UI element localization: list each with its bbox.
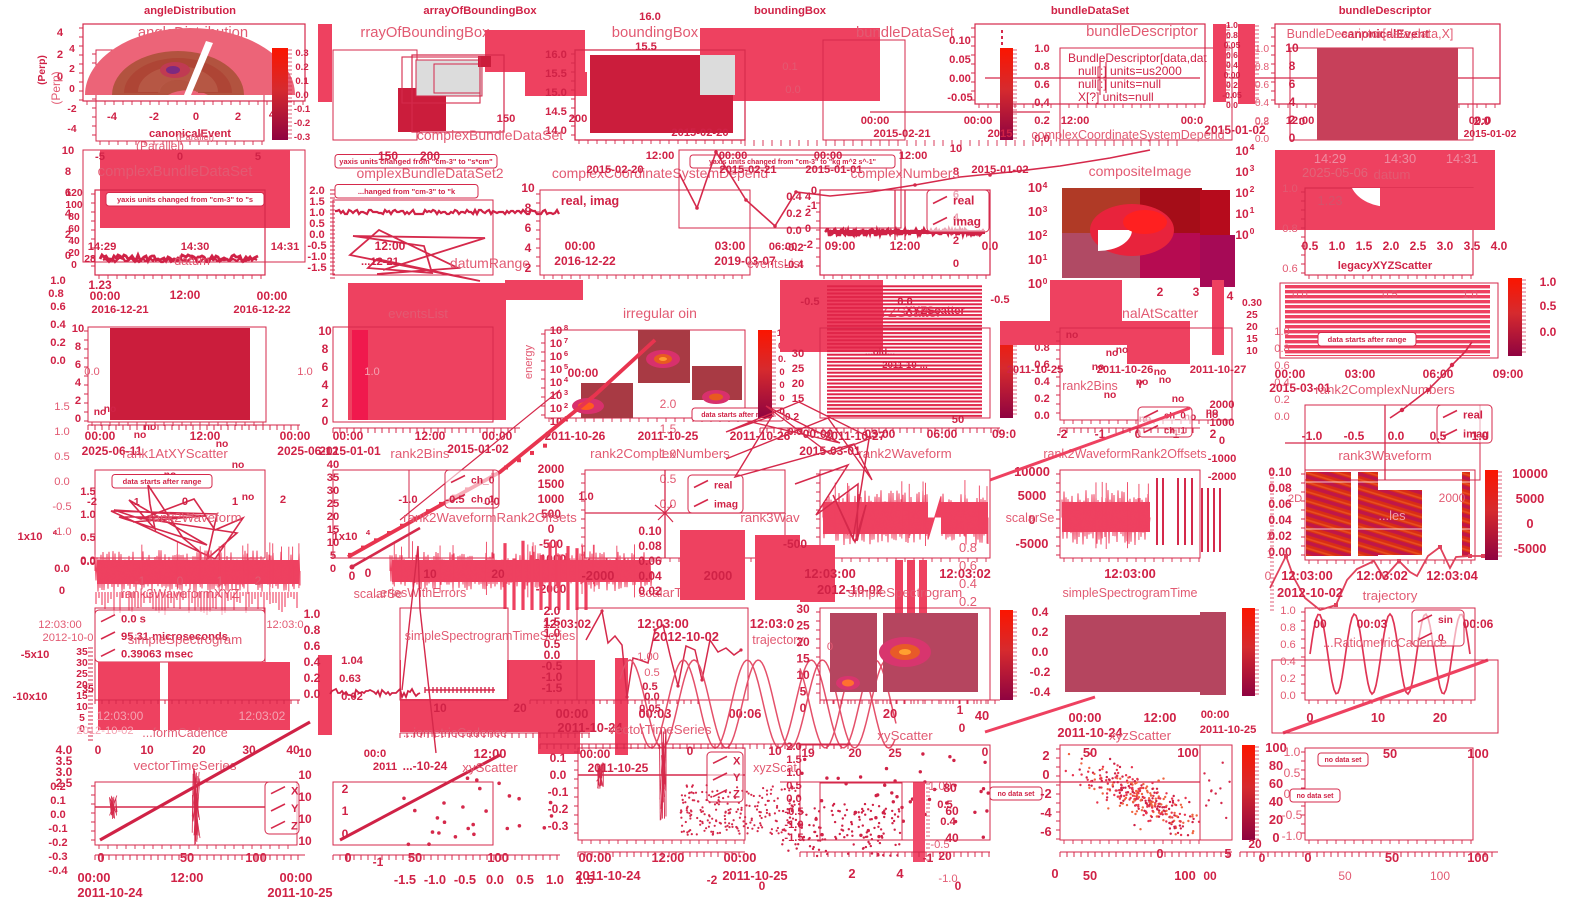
svg-text:0: 0 (177, 151, 183, 163)
svg-text:2011-10-25: 2011-10-25 (638, 429, 699, 443)
svg-text:-0.1: -0.1 (48, 823, 67, 835)
svg-text:0.0: 0.0 (84, 366, 100, 378)
svg-text:20: 20 (491, 567, 505, 581)
svg-text:60: 60 (68, 224, 80, 235)
svg-text:-0.5: -0.5 (1282, 808, 1303, 822)
svg-text:0: 0 (687, 744, 694, 758)
svg-text:1.0: 1.0 (1255, 44, 1270, 55)
svg-text:2: 2 (1042, 748, 1049, 763)
svg-text:1: 1 (1250, 205, 1255, 215)
svg-text:2: 2 (1210, 427, 1217, 441)
svg-text:2015-01-02: 2015-01-02 (1464, 129, 1517, 140)
svg-text:6: 6 (564, 349, 568, 358)
svg-text:-1.0: -1.0 (398, 494, 417, 506)
svg-text:legacyXYZScatter: legacyXYZScatter (1338, 260, 1433, 272)
svg-text:00: 00 (1203, 869, 1217, 883)
svg-text:12:03:02: 12:03:02 (239, 709, 286, 723)
svg-text:0: 0 (330, 563, 336, 575)
svg-text:12:03:02: 12:03:02 (939, 566, 991, 581)
svg-text:4: 4 (1043, 180, 1048, 190)
svg-text:00:00: 00:00 (1275, 367, 1306, 381)
svg-text:14:31: 14:31 (1446, 151, 1478, 166)
svg-text:09:00: 09:00 (825, 239, 856, 253)
svg-text:scalarSe: scalarSe (1006, 511, 1055, 525)
svg-text:no: no (1172, 394, 1185, 405)
svg-text:150: 150 (378, 149, 398, 163)
svg-text:2: 2 (57, 49, 63, 61)
svg-text:2: 2 (235, 111, 241, 123)
svg-text:0: 0 (95, 743, 102, 757)
svg-text:3: 3 (1193, 285, 1200, 299)
svg-text:0.6: 0.6 (1034, 79, 1050, 91)
svg-text:0: 0 (1250, 226, 1255, 236)
svg-text:10: 10 (1246, 346, 1258, 357)
svg-text:no: no (1116, 345, 1129, 356)
svg-text:-0.05: -0.05 (947, 92, 973, 104)
svg-text:X[?] units=null: X[?] units=null (1078, 90, 1154, 104)
svg-text:2.0: 2.0 (1474, 114, 1491, 128)
svg-text:0: 0 (182, 496, 188, 508)
svg-text:12:03:00: 12:03:00 (1281, 568, 1333, 583)
svg-text:0: 0 (322, 414, 329, 428)
svg-text:0.8: 0.8 (1255, 62, 1270, 73)
svg-text:00:06: 00:06 (1463, 617, 1494, 631)
svg-text:-5000: -5000 (1514, 541, 1547, 556)
svg-text:2011-10-26: 2011-10-26 (1097, 364, 1154, 376)
svg-text:10: 10 (1235, 228, 1249, 242)
svg-text:12:00: 12:00 (170, 288, 201, 302)
svg-text:8: 8 (525, 201, 532, 215)
svg-text:0.0: 0.0 (50, 809, 66, 821)
svg-text:2: 2 (564, 401, 568, 410)
svg-text:10: 10 (1028, 180, 1042, 195)
svg-text:0.6: 0.6 (304, 639, 321, 653)
svg-text:complexNumbers: complexNumbers (851, 165, 960, 181)
svg-text:00:00: 00:00 (280, 429, 311, 443)
svg-text:BundleDescriptor[data,data,X]: BundleDescriptor[data,data,X] (1287, 27, 1454, 41)
svg-text:1: 1 (232, 496, 238, 508)
svg-text:arrayOfBoundingBox: arrayOfBoundingBox (423, 5, 537, 17)
svg-text:2015-01-02: 2015-01-02 (447, 442, 509, 456)
svg-text:null[:] units=null: null[:] units=null (1078, 77, 1161, 91)
svg-text:no data set: no data set (1325, 757, 1363, 764)
svg-text:0.1: 0.1 (295, 76, 309, 87)
svg-text:5000: 5000 (1516, 491, 1545, 506)
svg-text:-0.05: -0.05 (1222, 90, 1242, 100)
svg-text:4: 4 (896, 866, 904, 881)
svg-text:200: 200 (569, 113, 588, 125)
svg-text:16.0: 16.0 (545, 49, 567, 61)
svg-text:0: 0 (811, 185, 817, 197)
svg-text:1.0: 1.0 (1284, 745, 1301, 759)
svg-text:0: 0 (1043, 276, 1048, 286)
svg-text:0.0: 0.0 (304, 687, 321, 701)
svg-text:0.8: 0.8 (959, 540, 977, 555)
svg-text:10: 10 (521, 181, 535, 195)
svg-text:4.0: 4.0 (1491, 239, 1508, 253)
svg-text:2012-10-0: 2012-10-0 (42, 632, 93, 644)
svg-text:0: 0 (779, 367, 784, 378)
svg-text:14.5: 14.5 (545, 106, 567, 118)
svg-text:6: 6 (75, 359, 81, 371)
svg-text:0.02: 0.02 (638, 584, 662, 598)
svg-text:0.06: 0.06 (1268, 497, 1292, 511)
svg-text:00:00: 00:00 (568, 366, 599, 380)
svg-text:-0.5: -0.5 (445, 494, 464, 506)
svg-text:4: 4 (75, 377, 82, 389)
svg-text:1.0: 1.0 (1274, 326, 1290, 338)
svg-text:3.5: 3.5 (1464, 239, 1481, 253)
svg-text:4: 4 (525, 241, 532, 255)
svg-text:50: 50 (1083, 745, 1097, 760)
svg-text:0.0: 0.0 (1034, 410, 1050, 422)
svg-text:1x10: 1x10 (333, 531, 358, 543)
svg-text:12:00: 12:00 (899, 150, 928, 162)
svg-text:00:00: 00:00 (1201, 709, 1230, 721)
svg-text:0.6: 0.6 (1255, 80, 1270, 91)
svg-text:2015-02-21: 2015-02-21 (873, 128, 930, 140)
svg-text:0.10: 0.10 (949, 35, 971, 47)
svg-text:...hanged from "cm-3" to "k: ...hanged from "cm-3" to "k (358, 187, 456, 196)
svg-text:10: 10 (298, 790, 312, 804)
svg-text:12:00: 12:00 (1061, 115, 1090, 127)
svg-text:0.0: 0.0 (786, 793, 802, 805)
svg-text:2: 2 (848, 866, 855, 881)
svg-text:10: 10 (1028, 204, 1042, 219)
svg-text:0: 0 (177, 574, 184, 588)
svg-text:0.1: 0.1 (50, 795, 66, 807)
svg-text:rank2Waveform: rank2Waveform (858, 446, 951, 461)
svg-text:1.0: 1.0 (1540, 275, 1557, 289)
svg-text:-0.5: -0.5 (1344, 429, 1365, 443)
svg-text:no: no (232, 460, 245, 471)
svg-text:-2000: -2000 (582, 568, 615, 583)
svg-text:simpleSpectrogram: simpleSpectrogram (848, 585, 963, 600)
svg-text:(Perp): (Perp) (49, 71, 63, 104)
svg-text:-1: -1 (923, 851, 934, 865)
svg-text:2: 2 (69, 64, 75, 75)
svg-text:rank2WaveformRank2Offsets: rank2WaveformRank2Offsets (403, 510, 577, 525)
svg-text:vectorTimeSeries: vectorTimeSeries (609, 722, 712, 737)
svg-text:0.4: 0.4 (940, 816, 956, 828)
svg-text:4: 4 (57, 27, 64, 39)
svg-text:15.0: 15.0 (545, 87, 567, 99)
svg-text:2011-10-27: 2011-10-27 (1190, 364, 1247, 376)
svg-text:imag: imag (714, 500, 738, 511)
svg-text:00: 00 (1313, 617, 1327, 631)
svg-text:-0.2: -0.2 (548, 802, 569, 816)
svg-text:0: 0 (1042, 767, 1049, 782)
svg-text:2025-05-06: 2025-05-06 (1302, 165, 1368, 180)
svg-text:0.3: 0.3 (295, 48, 308, 59)
svg-text:09:00: 09:00 (1493, 367, 1524, 381)
svg-text:2016-12-22: 2016-12-22 (233, 304, 290, 316)
svg-text:simpleSpectrogram: simpleSpectrogram (128, 632, 243, 647)
svg-text:rank2Waveform: rank2Waveform (148, 510, 241, 525)
svg-text:0.: 0. (778, 354, 786, 365)
svg-text:0.8: 0.8 (1255, 117, 1270, 128)
svg-text:...12-21: ...12-21 (361, 256, 399, 268)
svg-text:10: 10 (1285, 41, 1299, 55)
svg-text:0.4: 0.4 (1226, 60, 1238, 70)
svg-text:rrayOfBoundingBox: rrayOfBoundingBox (360, 25, 490, 41)
svg-text:10: 10 (433, 701, 447, 715)
svg-text:0: 0 (349, 569, 356, 583)
svg-text:1500: 1500 (538, 477, 565, 491)
svg-text:0: 0 (1259, 851, 1266, 865)
svg-text:-1.5: -1.5 (394, 872, 416, 887)
svg-text:0.2: 0.2 (50, 337, 66, 349)
svg-text:0.2: 0.2 (1032, 625, 1049, 639)
svg-text:20: 20 (1433, 710, 1447, 725)
svg-text:1.0: 1.0 (50, 275, 66, 287)
svg-text:-5000: -5000 (1016, 536, 1049, 551)
svg-text:12:00: 12:00 (1144, 710, 1177, 725)
svg-text:00:00: 00:00 (333, 429, 364, 443)
svg-text:0: 0 (1526, 516, 1533, 531)
svg-text:0: 0 (1219, 435, 1225, 447)
svg-text:2: 2 (1157, 285, 1164, 299)
svg-text:4: 4 (322, 378, 329, 392)
svg-text:rank1AtXYScatter: rank1AtXYScatter (122, 446, 228, 461)
svg-text:0: 0 (805, 223, 811, 235)
svg-text:2.0: 2.0 (660, 397, 677, 411)
svg-text:-0.5: -0.5 (800, 296, 819, 308)
svg-text:2011-10-25: 2011-10-25 (1007, 364, 1064, 376)
svg-text:-500: -500 (783, 537, 807, 551)
svg-text:-4: -4 (1040, 805, 1052, 820)
svg-text:00:00: 00:00 (565, 239, 596, 253)
svg-text:100: 100 (1174, 868, 1196, 883)
svg-text:rank2Bins: rank2Bins (1062, 379, 1118, 393)
svg-text:0.0: 0.0 (1226, 100, 1238, 110)
svg-text:(Perp): (Perp) (37, 55, 48, 85)
svg-text:rank3Waveform: rank3Waveform (1338, 448, 1431, 463)
svg-text:35: 35 (82, 684, 94, 695)
svg-text:2: 2 (1267, 529, 1274, 543)
svg-text:-0.5: -0.5 (930, 839, 949, 851)
svg-text:-2: -2 (803, 239, 813, 251)
svg-text:2015-02-20: 2015-02-20 (586, 164, 643, 176)
svg-text:10: 10 (1235, 186, 1249, 200)
svg-text:06:00: 06:00 (769, 241, 798, 253)
svg-text:ch_1: ch_1 (1164, 426, 1186, 437)
svg-text:irregular oin: irregular oin (623, 305, 697, 321)
svg-text:BundleDescriptor[data,dat: BundleDescriptor[data,dat (1068, 51, 1207, 65)
svg-text:10: 10 (550, 351, 562, 363)
svg-text:8: 8 (75, 341, 81, 353)
svg-text:0.04: 0.04 (1268, 513, 1292, 527)
svg-text:1.5: 1.5 (1356, 239, 1373, 253)
svg-text:0.0: 0.0 (486, 872, 504, 887)
svg-text:-6: -6 (1040, 824, 1051, 839)
svg-text:5000: 5000 (1018, 488, 1047, 503)
svg-text:0: 0 (800, 701, 807, 715)
svg-text:-1: -1 (135, 574, 146, 588)
svg-text:-0.4: -0.4 (48, 865, 68, 877)
svg-text:1.0: 1.0 (1034, 43, 1050, 55)
svg-text:10: 10 (1371, 710, 1385, 725)
svg-text:12:00: 12:00 (375, 239, 406, 253)
svg-text:2011-10-25: 2011-10-25 (588, 761, 649, 775)
svg-text:15: 15 (796, 652, 810, 666)
svg-text:200: 200 (420, 149, 440, 163)
svg-text:0.4: 0.4 (1034, 97, 1050, 109)
svg-text:2011: 2011 (373, 761, 397, 773)
svg-text:0.5: 0.5 (1302, 239, 1319, 253)
svg-text:00:00: 00:00 (78, 870, 111, 885)
svg-text:0.0: 0.0 (1032, 645, 1049, 659)
svg-text:12:03:00: 12:03:00 (804, 566, 856, 581)
svg-text:bundleDataSet: bundleDataSet (856, 25, 954, 41)
svg-text:0.63: 0.63 (339, 673, 361, 685)
svg-text:1.0: 1.0 (786, 767, 802, 779)
svg-text:0.4: 0.4 (304, 655, 321, 669)
svg-text:0.0: 0.0 (786, 225, 802, 237)
svg-text:12:03:0: 12:03:0 (266, 619, 303, 631)
svg-text:20: 20 (68, 248, 80, 259)
svg-text:80: 80 (1269, 758, 1283, 773)
svg-text:2012-10-02: 2012-10-02 (76, 725, 133, 737)
svg-text:no data set: no data set (998, 791, 1036, 798)
svg-text:2015-02-21: 2015-02-21 (719, 164, 776, 176)
svg-text:0.0: 0.0 (54, 476, 70, 488)
svg-text:complexBundleDataSet: complexBundleDataSet (417, 127, 563, 143)
svg-text:00:00: 00:00 (861, 115, 890, 127)
svg-text:120: 120 (65, 188, 82, 199)
svg-text:2: 2 (1043, 228, 1048, 238)
svg-text:15.5: 15.5 (545, 68, 567, 80)
svg-text:0.4: 0.4 (1032, 605, 1049, 619)
svg-text:00:00: 00:00 (803, 427, 834, 441)
svg-text:no: no (216, 439, 229, 450)
svg-text:14:31: 14:31 (271, 241, 300, 253)
svg-text:2: 2 (1289, 113, 1296, 127)
svg-text:3.0: 3.0 (1437, 239, 1454, 253)
svg-text:20: 20 (513, 701, 527, 715)
svg-text:10: 10 (1235, 165, 1249, 179)
svg-text:1.5: 1.5 (786, 754, 802, 766)
svg-text:0.0: 0.0 (1540, 325, 1557, 339)
svg-text:0.6: 0.6 (1226, 50, 1238, 60)
svg-text:10: 10 (423, 567, 437, 581)
svg-text:0: 0 (75, 413, 81, 425)
svg-text:...-10-24: ...-10-24 (403, 759, 448, 773)
svg-text:0.39063 msec: 0.39063 msec (121, 648, 193, 660)
svg-text:no: no (1206, 410, 1219, 421)
svg-text:00:00: 00:00 (556, 706, 589, 721)
svg-text:10: 10 (1028, 276, 1042, 291)
svg-text:-0.3: -0.3 (294, 132, 310, 143)
svg-text:2000: 2000 (704, 568, 733, 583)
svg-text:-0.3: -0.3 (48, 851, 67, 863)
svg-text:2.5: 2.5 (1410, 239, 1427, 253)
svg-text:1: 1 (957, 703, 964, 717)
svg-text:50: 50 (952, 414, 964, 426)
svg-text:2011-10-25: 2011-10-25 (722, 868, 787, 883)
svg-text:10: 10 (550, 364, 562, 376)
svg-text:-1.0: -1.0 (1282, 829, 1303, 843)
svg-text:datum: datum (1374, 167, 1411, 182)
svg-text:2015-01-02: 2015-01-02 (971, 164, 1028, 176)
svg-text:20: 20 (792, 378, 804, 390)
svg-text:00:0: 00:0 (1181, 115, 1203, 127)
svg-text:30: 30 (796, 602, 810, 616)
svg-text:2012-10-02: 2012-10-02 (653, 629, 719, 644)
svg-text:0.1: 0.1 (550, 751, 567, 765)
svg-text:2011-10-24: 2011-10-24 (575, 868, 641, 883)
svg-text:simpleSpectrogramTime: simpleSpectrogramTime (1063, 586, 1198, 600)
svg-text:0.0: 0.0 (54, 563, 70, 575)
svg-text:12:03:04: 12:03:04 (1426, 568, 1478, 583)
svg-text:00:00: 00:00 (85, 429, 116, 443)
svg-text:...les: ...les (1378, 508, 1405, 523)
svg-text:0.1: 0.1 (782, 61, 798, 73)
svg-text:25: 25 (792, 363, 804, 375)
svg-text:100: 100 (1177, 745, 1199, 760)
svg-text:trajectory: trajectory (1363, 588, 1418, 603)
svg-text:angleDistribution: angleDistribution (144, 5, 236, 17)
svg-text:bundleDescriptor: bundleDescriptor (1339, 5, 1432, 17)
svg-text:datumRange: datumRange (450, 255, 530, 271)
svg-text:2016-12-21: 2016-12-21 (91, 304, 148, 316)
svg-text:-0.5: -0.5 (52, 501, 71, 513)
svg-text:0.04: 0.04 (638, 569, 662, 583)
svg-text:10: 10 (298, 834, 312, 848)
svg-text:-2: -2 (149, 111, 159, 123)
svg-text:4: 4 (1289, 95, 1296, 109)
svg-text:-1.5: -1.5 (542, 681, 563, 695)
svg-text:bundleDescriptor: bundleDescriptor (1086, 24, 1198, 40)
svg-text:3: 3 (1250, 163, 1255, 173)
svg-text:10: 10 (72, 323, 84, 335)
svg-text:100: 100 (1430, 869, 1450, 883)
svg-text:00:00: 00:00 (580, 747, 611, 761)
svg-text:0.0: 0.0 (80, 556, 96, 568)
svg-text:40: 40 (1269, 794, 1283, 809)
svg-text:-0.4: -0.4 (1030, 685, 1051, 699)
svg-text:4: 4 (366, 528, 371, 537)
svg-text:12:03:02: 12:03:02 (543, 617, 591, 631)
svg-text:10: 10 (1235, 207, 1249, 221)
svg-text:5: 5 (79, 713, 85, 724)
svg-text:15: 15 (1246, 334, 1258, 345)
svg-text:Z: Z (291, 820, 298, 832)
svg-text:3: 3 (1043, 204, 1048, 214)
svg-text:0.5: 0.5 (1540, 299, 1557, 313)
svg-text:-1.0: -1.0 (424, 872, 446, 887)
svg-text:-1: -1 (130, 497, 139, 508)
svg-text:1.0: 1.0 (1472, 429, 1489, 443)
svg-text:1.04: 1.04 (341, 655, 364, 667)
svg-text:25: 25 (796, 619, 810, 633)
svg-text:09:0: 09:0 (992, 427, 1016, 441)
svg-text:0.05: 0.05 (639, 703, 661, 715)
svg-text:0.00: 0.00 (949, 73, 971, 85)
svg-text:datum: datum (174, 253, 210, 268)
svg-text:0.2: 0.2 (1280, 673, 1296, 685)
svg-text:1: 1 (342, 804, 349, 818)
svg-text:10: 10 (62, 145, 74, 157)
svg-text:-0.1: -0.1 (548, 785, 569, 799)
svg-text:(Parallel): (Parallel) (176, 132, 214, 143)
svg-text:8: 8 (564, 323, 569, 332)
svg-text:0.05: 0.05 (1224, 40, 1241, 50)
svg-text:1.23: 1.23 (1317, 193, 1342, 208)
svg-text:compositeImage: compositeImage (1089, 163, 1192, 179)
svg-text:eventsList: eventsList (388, 306, 448, 321)
svg-text:0: 0 (955, 879, 962, 893)
